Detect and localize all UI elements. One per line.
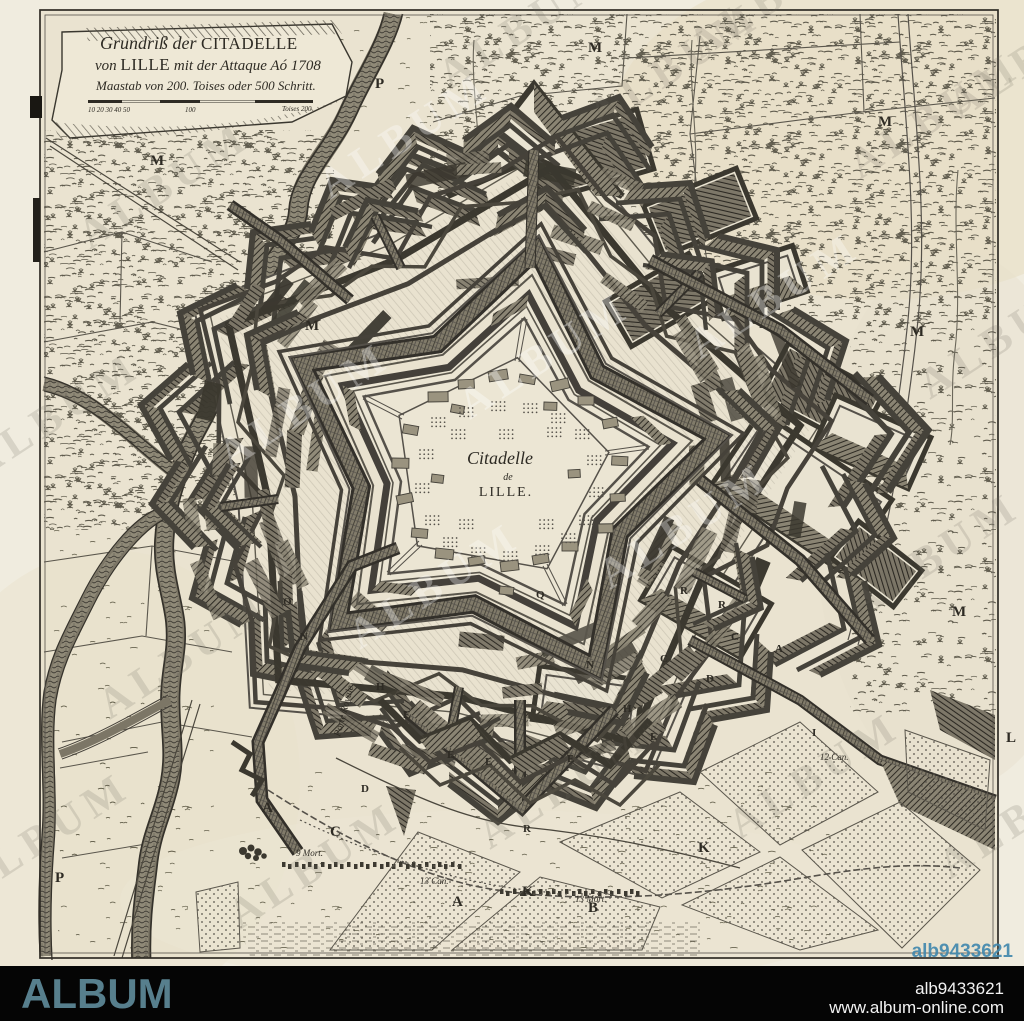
svg-text:O: O xyxy=(283,596,292,608)
svg-text:K: K xyxy=(522,884,534,900)
svg-text:R: R xyxy=(718,599,727,611)
svg-text:N: N xyxy=(586,659,594,671)
svg-text:A: A xyxy=(262,800,273,816)
svg-text:Maastab von 200. Toises oder 5: Maastab von 200. Toises oder 500 Schritt… xyxy=(95,78,316,93)
svg-text:C: C xyxy=(731,631,739,643)
svg-text:K: K xyxy=(698,840,710,856)
svg-text:M: M xyxy=(588,40,602,56)
svg-text:von LILLE mit der Attaque Aó 1: von LILLE mit der Attaque Aó 1708 xyxy=(95,55,321,74)
svg-text:M: M xyxy=(952,604,966,620)
svg-text:A: A xyxy=(452,894,463,910)
svg-text:P: P xyxy=(55,870,64,886)
svg-text:Q: Q xyxy=(536,589,545,601)
svg-text:de: de xyxy=(503,472,513,483)
svg-text:alb9433621: alb9433621 xyxy=(912,941,1014,962)
svg-text:E: E xyxy=(403,709,410,721)
svg-text:I: I xyxy=(812,727,816,739)
svg-text:D: D xyxy=(361,783,369,795)
svg-text:M: M xyxy=(305,318,319,334)
svg-text:R: R xyxy=(680,585,689,597)
svg-text:alb9433621: alb9433621 xyxy=(915,979,1004,998)
svg-text:L: L xyxy=(1006,730,1016,746)
svg-text:H: H xyxy=(623,703,632,715)
svg-text:M: M xyxy=(910,324,924,340)
svg-text:P: P xyxy=(375,76,384,92)
svg-text:C: C xyxy=(660,653,668,665)
svg-text:Grundriß der CITADELLE: Grundriß der CITADELLE xyxy=(100,33,298,53)
svg-text:www.album-online.com: www.album-online.com xyxy=(828,998,1004,1017)
svg-text:E: E xyxy=(447,749,454,761)
svg-text:Citadelle: Citadelle xyxy=(467,448,533,468)
svg-text:ALBUM: ALBUM xyxy=(21,970,173,1017)
svg-text:A: A xyxy=(775,643,783,655)
svg-text:D: D xyxy=(706,673,714,685)
svg-text:LILLE.: LILLE. xyxy=(479,485,533,500)
svg-text:B: B xyxy=(588,900,598,916)
svg-text:E: E xyxy=(485,756,492,768)
svg-text:H: H xyxy=(376,681,385,693)
svg-text:10 20 30 40 50: 10 20 30 40 50 xyxy=(88,106,131,114)
svg-text:Toises 200: Toises 200 xyxy=(282,105,312,113)
svg-text:100: 100 xyxy=(185,106,196,114)
svg-text:N: N xyxy=(300,631,308,643)
